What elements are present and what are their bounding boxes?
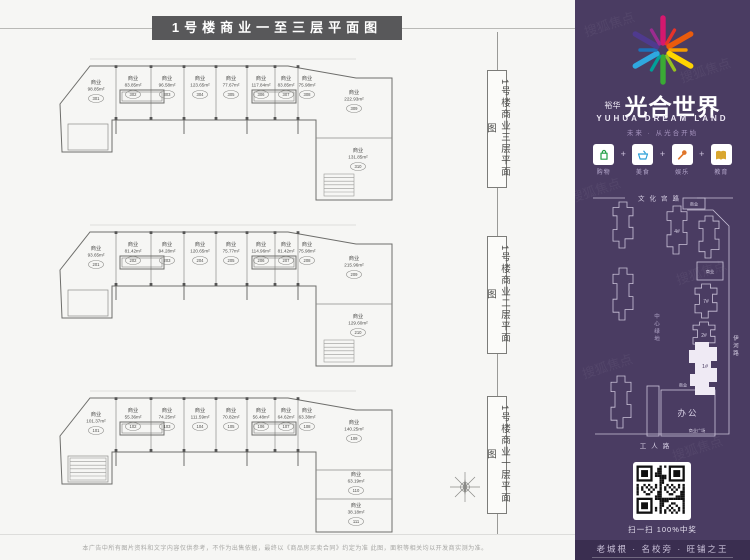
svg-text:办公: 办公: [677, 408, 698, 418]
amenity-entertainment: 娱乐: [669, 144, 695, 176]
svg-text:文化宫路: 文化宫路: [638, 194, 684, 203]
book-icon: [711, 144, 732, 165]
svg-text:102: 102: [130, 424, 138, 429]
svg-text:商业: 商业: [256, 74, 266, 82]
svg-text:208: 208: [304, 258, 312, 263]
brand-name-en: YUHUA DREAM LAND: [575, 114, 750, 123]
svg-text:绿: 绿: [654, 327, 660, 335]
svg-text:131.85m²: 131.85m²: [348, 155, 368, 160]
svg-text:105: 105: [228, 424, 236, 429]
svg-text:7#: 7#: [703, 299, 709, 305]
disclaimer-text: 本广告中所有图片资料和文字内容仅供参考，不作为出售依据，最终以《商品房买卖合同》…: [40, 543, 530, 552]
svg-text:商业: 商业: [353, 312, 363, 320]
svg-text:104: 104: [197, 424, 205, 429]
svg-text:204: 204: [197, 258, 205, 263]
svg-text:商业: 商业: [91, 410, 101, 418]
brand-starburst-logo: [593, 6, 733, 90]
food-bowl-icon: [632, 144, 653, 165]
svg-text:地: 地: [654, 335, 660, 343]
svg-text:75.98m²: 75.98m²: [299, 83, 316, 88]
plus-separator: +: [621, 144, 626, 165]
amenity-label: 娱乐: [675, 167, 689, 176]
svg-text:63.38m²: 63.38m²: [299, 415, 316, 420]
svg-text:106: 106: [258, 424, 266, 429]
amenity-food: 美食: [630, 144, 656, 176]
side-label-level3: 1号楼商业三层平面图: [487, 70, 507, 188]
svg-text:308: 308: [304, 92, 312, 97]
svg-text:商业: 商业: [256, 406, 266, 414]
svg-text:商业: 商业: [351, 470, 361, 478]
side-label-level1: 1号楼商业一层平面图: [487, 396, 507, 514]
svg-text:305: 305: [228, 92, 236, 97]
svg-text:83.85m²: 83.85m²: [278, 83, 295, 88]
svg-text:81.42m²: 81.42m²: [278, 249, 295, 254]
svg-text:商业: 商业: [706, 268, 714, 275]
amenity-label: 美食: [636, 167, 650, 176]
svg-text:商业: 商业: [91, 78, 101, 86]
svg-text:111: 111: [353, 519, 360, 524]
svg-text:商业: 商业: [195, 406, 205, 414]
svg-text:206: 206: [258, 258, 266, 263]
page-title: 1号楼商业一至三层平面图: [152, 16, 402, 40]
svg-text:74.25m²: 74.25m²: [159, 415, 176, 420]
svg-text:商业: 商业: [281, 406, 291, 414]
svg-text:心: 心: [654, 321, 660, 328]
footer-strip: 老城根 · 名校旁 · 旺铺之王: [575, 540, 750, 560]
svg-text:商业: 商业: [226, 406, 236, 414]
svg-text:107: 107: [283, 424, 291, 429]
svg-text:304: 304: [197, 92, 205, 97]
amenity-shopping: 购物: [591, 144, 617, 176]
svg-text:商业: 商业: [302, 406, 312, 414]
svg-text:商业: 商业: [349, 418, 359, 426]
svg-text:商业: 商业: [349, 88, 359, 96]
svg-text:202: 202: [130, 258, 138, 263]
amenity-education: 教育: [708, 144, 734, 176]
svg-text:商业: 商业: [256, 240, 266, 248]
svg-text:140.25m²: 140.25m²: [344, 427, 364, 432]
poster: 1号楼商业一至三层平面图 商业98.85m²301商业83.85m²302商业9…: [0, 0, 750, 560]
svg-text:商业: 商业: [162, 406, 172, 414]
plus-separator: +: [660, 144, 665, 165]
svg-text:商业: 商业: [302, 74, 312, 82]
amenity-label: 教育: [714, 167, 728, 176]
svg-text:94.28m²: 94.28m²: [159, 249, 176, 254]
svg-text:129.60m²: 129.60m²: [348, 321, 368, 326]
svg-text:111.59m²: 111.59m²: [191, 415, 210, 420]
svg-text:309: 309: [351, 106, 359, 111]
plus-separator: +: [699, 144, 704, 165]
amenity-label: 购物: [597, 167, 611, 176]
svg-text:商业: 商业: [128, 74, 138, 82]
svg-text:83.85m²: 83.85m²: [125, 83, 142, 88]
floor-plan-level2: 商业93.65m²201商业81.42m²202商业94.28m²203商业12…: [56, 212, 396, 372]
brand-slogan: 未来 · 从光合开始: [575, 127, 750, 137]
svg-text:38.18m²: 38.18m²: [348, 510, 365, 515]
svg-text:商业: 商业: [679, 382, 687, 389]
svg-text:63.19m²: 63.19m²: [348, 479, 365, 484]
svg-text:98.85m²: 98.85m²: [88, 87, 105, 92]
svg-text:222.93m²: 222.93m²: [344, 97, 364, 102]
svg-text:210: 210: [355, 330, 363, 335]
svg-text:77.67m²: 77.67m²: [223, 83, 240, 88]
svg-text:103: 103: [164, 424, 172, 429]
svg-text:117.84m²: 117.84m²: [251, 83, 271, 88]
svg-text:商业: 商业: [128, 406, 138, 414]
brand-sidebar: 搜狐焦点 搜狐焦点 搜狐焦点 搜狐焦点 搜狐焦点 搜狐焦点 裕华 光合世界 YU…: [575, 0, 750, 560]
svg-text:伊: 伊: [733, 334, 739, 342]
svg-text:307: 307: [283, 92, 291, 97]
svg-text:70.82m²: 70.82m²: [223, 415, 240, 420]
svg-text:商业: 商业: [349, 254, 359, 262]
floor-plan-level3: 商业98.85m²301商业83.85m²302商业96.58m²303商业12…: [56, 46, 396, 206]
svg-text:1#: 1#: [702, 364, 709, 370]
svg-text:中: 中: [654, 312, 660, 320]
compass-icon: [448, 470, 482, 504]
svg-text:55.36m²: 55.36m²: [125, 415, 142, 420]
svg-text:81.42m²: 81.42m²: [125, 249, 142, 254]
svg-text:110: 110: [353, 488, 360, 493]
svg-text:河: 河: [733, 342, 739, 350]
svg-text:108: 108: [304, 424, 312, 429]
svg-text:商业: 商业: [690, 201, 698, 208]
svg-text:工人路: 工人路: [640, 441, 675, 450]
svg-text:109: 109: [351, 436, 359, 441]
svg-text:201: 201: [93, 262, 101, 267]
svg-text:114.96m²: 114.96m²: [251, 249, 271, 254]
qr-code: [633, 462, 691, 520]
svg-text:2#: 2#: [701, 333, 707, 339]
footer-tagline: 老城根 · 名校旁 · 旺铺之王: [592, 543, 732, 558]
svg-text:205: 205: [228, 258, 236, 263]
svg-text:56.48m²: 56.48m²: [253, 415, 270, 420]
amenity-row: 购物 + 美食 + 娱乐 + 教育: [575, 144, 750, 176]
svg-text:302: 302: [130, 92, 138, 97]
svg-text:310: 310: [355, 164, 363, 169]
svg-text:75.98m²: 75.98m²: [299, 249, 316, 254]
svg-text:101.37m²: 101.37m²: [86, 419, 106, 424]
svg-text:商业广场: 商业广场: [689, 427, 706, 434]
svg-text:商业: 商业: [195, 74, 205, 82]
shopping-bag-icon: [593, 144, 614, 165]
svg-text:商业: 商业: [226, 74, 236, 82]
svg-text:商业: 商业: [128, 240, 138, 248]
svg-text:93.65m²: 93.65m²: [88, 253, 105, 258]
svg-text:商业: 商业: [281, 240, 291, 248]
svg-text:64.62m²: 64.62m²: [278, 415, 295, 420]
brand-prefix: 裕华: [605, 101, 621, 110]
svg-text:商业: 商业: [226, 240, 236, 248]
svg-text:商业: 商业: [353, 146, 363, 154]
floorplan-panel: 1号楼商业一至三层平面图 商业98.85m²301商业83.85m²302商业9…: [0, 0, 575, 560]
svg-text:101: 101: [93, 428, 101, 433]
svg-text:商业: 商业: [281, 74, 291, 82]
svg-text:商业: 商业: [91, 244, 101, 252]
side-label-level2: 1号楼商业二层平面图: [487, 236, 507, 354]
svg-text:商业: 商业: [162, 74, 172, 82]
svg-text:301: 301: [93, 96, 101, 101]
microphone-icon: [672, 144, 693, 165]
svg-text:75.77m²: 75.77m²: [223, 249, 240, 254]
svg-text:商业: 商业: [162, 240, 172, 248]
svg-text:215.96m²: 215.96m²: [344, 263, 364, 268]
svg-text:209: 209: [351, 272, 359, 277]
svg-text:123.65m²: 123.65m²: [190, 83, 210, 88]
svg-text:120.65m²: 120.65m²: [190, 249, 210, 254]
floor-plan-level1: 商业101.37m²101商业55.36m²102商业74.25m²103商业1…: [56, 378, 396, 538]
brand-prefix-text: 裕华: [605, 101, 621, 110]
svg-text:306: 306: [258, 92, 266, 97]
svg-text:商业: 商业: [351, 501, 361, 509]
svg-text:203: 203: [164, 258, 172, 263]
svg-text:商业: 商业: [195, 240, 205, 248]
svg-text:路: 路: [733, 349, 739, 357]
site-map: 文化宫路商业商业4#7#2#1#办公商业商业广场中心绿地伊河路工人路: [583, 190, 743, 460]
svg-text:4#: 4#: [674, 229, 680, 235]
svg-text:303: 303: [164, 92, 172, 97]
svg-text:商业: 商业: [302, 240, 312, 248]
svg-text:96.58m²: 96.58m²: [159, 83, 176, 88]
qr-caption: 扫一扫 100%中奖: [575, 524, 750, 535]
svg-text:207: 207: [283, 258, 291, 263]
